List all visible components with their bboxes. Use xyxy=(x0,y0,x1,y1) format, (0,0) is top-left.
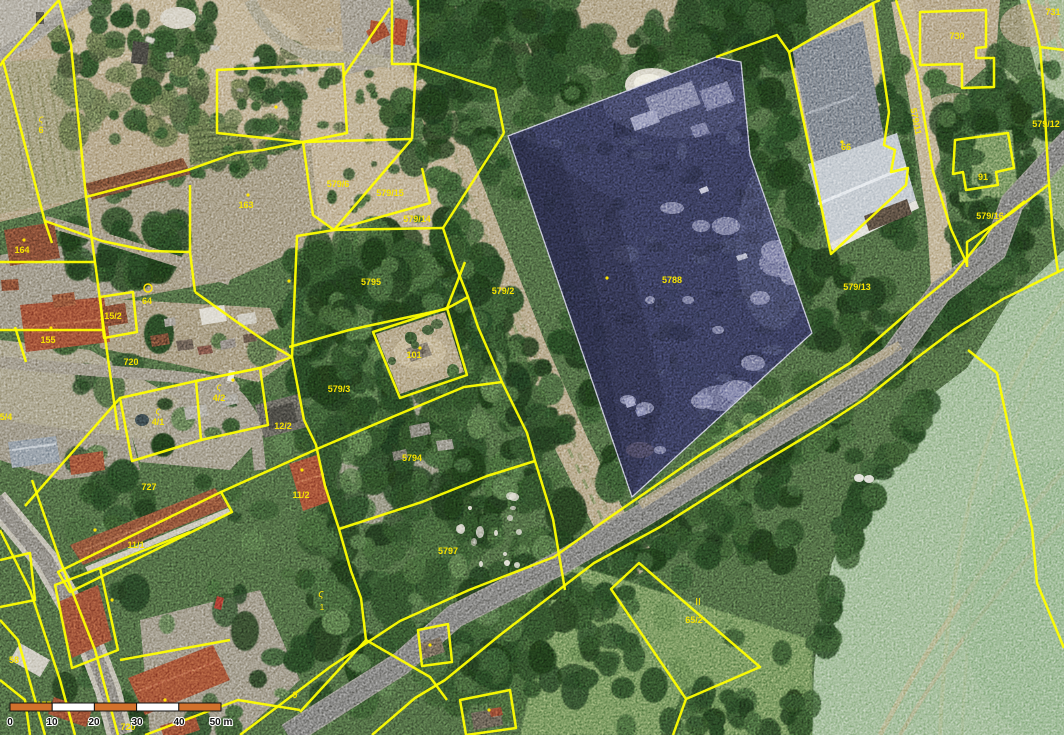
svg-text:579/2: 579/2 xyxy=(492,286,515,296)
svg-text:ς: ς xyxy=(39,114,44,125)
svg-text:727: 727 xyxy=(141,482,156,492)
svg-text:579/6: 579/6 xyxy=(327,179,350,189)
svg-text:30: 30 xyxy=(131,717,143,728)
svg-text:4/1: 4/1 xyxy=(152,417,165,427)
svg-text:579/16: 579/16 xyxy=(976,211,1004,221)
svg-text:10: 10 xyxy=(46,717,58,728)
svg-text:64: 64 xyxy=(142,296,152,306)
svg-text:12/2: 12/2 xyxy=(274,421,292,431)
svg-text:579/13: 579/13 xyxy=(843,282,871,292)
svg-text:1: 1 xyxy=(320,603,325,612)
svg-text:ς: ς xyxy=(318,588,324,600)
svg-text:155: 155 xyxy=(40,335,55,345)
svg-text:0: 0 xyxy=(7,717,13,728)
svg-text:6: 6 xyxy=(38,125,43,135)
svg-text:163: 163 xyxy=(238,200,253,210)
svg-text:5/4: 5/4 xyxy=(0,412,12,422)
svg-text:50 m: 50 m xyxy=(210,717,233,728)
svg-text:20: 20 xyxy=(88,717,100,728)
svg-text:579/3: 579/3 xyxy=(328,384,351,394)
svg-text:11/1: 11/1 xyxy=(127,540,144,550)
svg-text:40: 40 xyxy=(173,717,185,728)
svg-text:9: 9 xyxy=(292,690,297,700)
svg-text:58: 58 xyxy=(9,655,19,665)
svg-text:5794: 5794 xyxy=(402,453,422,463)
svg-text:720: 720 xyxy=(123,357,138,367)
svg-text:579/15: 579/15 xyxy=(376,188,404,198)
svg-text:ς: ς xyxy=(156,406,161,417)
svg-text:5797: 5797 xyxy=(438,546,458,556)
svg-text:579/14: 579/14 xyxy=(403,214,431,224)
svg-text:11/2: 11/2 xyxy=(292,490,309,500)
svg-text:91: 91 xyxy=(978,172,988,182)
svg-text:164: 164 xyxy=(14,245,29,255)
svg-text:101: 101 xyxy=(406,350,421,360)
svg-text:731: 731 xyxy=(1045,7,1060,17)
svg-text:5795: 5795 xyxy=(361,277,381,287)
svg-text:4/2: 4/2 xyxy=(213,393,226,403)
svg-text:5788: 5788 xyxy=(662,275,682,285)
svg-text:730: 730 xyxy=(949,31,964,41)
svg-text:15/2: 15/2 xyxy=(104,311,122,321)
svg-text:II: II xyxy=(695,597,701,608)
svg-text:579/12: 579/12 xyxy=(1032,119,1060,129)
svg-text:ς: ς xyxy=(217,382,222,393)
svg-text:65/2: 65/2 xyxy=(685,615,703,625)
